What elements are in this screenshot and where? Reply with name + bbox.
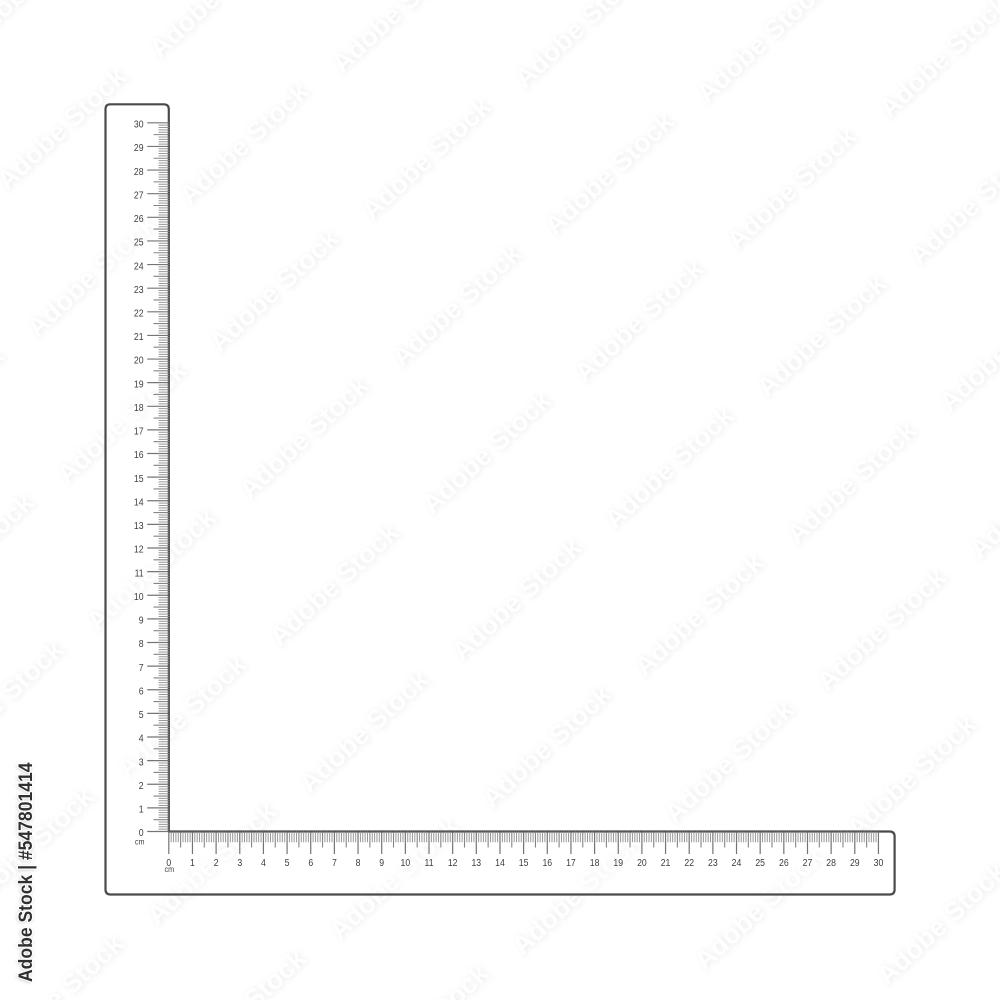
svg-text:1: 1 <box>139 804 144 816</box>
svg-text:20: 20 <box>134 355 144 367</box>
svg-text:4: 4 <box>261 857 266 869</box>
svg-text:25: 25 <box>134 237 144 249</box>
svg-text:17: 17 <box>566 857 576 869</box>
svg-text:16: 16 <box>542 857 552 869</box>
svg-text:25: 25 <box>755 857 765 869</box>
svg-text:14: 14 <box>134 497 144 509</box>
svg-text:12: 12 <box>134 544 144 556</box>
svg-text:11: 11 <box>135 568 144 580</box>
svg-text:7: 7 <box>139 662 144 674</box>
svg-text:29: 29 <box>850 857 860 869</box>
svg-text:cm: cm <box>164 865 174 875</box>
svg-text:30: 30 <box>134 119 144 131</box>
svg-text:1: 1 <box>190 857 195 869</box>
svg-text:28: 28 <box>134 166 144 178</box>
svg-text:4: 4 <box>139 733 144 745</box>
svg-text:19: 19 <box>613 857 623 869</box>
svg-text:12: 12 <box>448 857 458 869</box>
svg-text:23: 23 <box>134 284 144 296</box>
svg-text:9: 9 <box>379 857 384 869</box>
svg-text:19: 19 <box>134 379 144 391</box>
svg-text:22: 22 <box>684 857 694 869</box>
svg-text:8: 8 <box>356 857 361 869</box>
svg-text:3: 3 <box>139 757 144 769</box>
svg-text:6: 6 <box>308 857 313 869</box>
svg-text:16: 16 <box>134 450 144 462</box>
svg-text:14: 14 <box>495 857 505 869</box>
svg-text:2: 2 <box>139 780 144 792</box>
svg-text:5: 5 <box>139 709 144 721</box>
svg-text:26: 26 <box>134 213 144 225</box>
svg-text:2: 2 <box>214 857 219 869</box>
svg-text:23: 23 <box>708 857 718 869</box>
svg-text:11: 11 <box>424 857 433 869</box>
svg-text:8: 8 <box>139 639 144 651</box>
svg-text:5: 5 <box>285 857 290 869</box>
svg-text:15: 15 <box>519 857 529 869</box>
svg-text:10: 10 <box>401 857 411 869</box>
svg-text:17: 17 <box>134 426 144 438</box>
svg-text:18: 18 <box>134 402 144 414</box>
svg-text:10: 10 <box>134 591 144 603</box>
svg-text:24: 24 <box>732 857 742 869</box>
svg-text:21: 21 <box>661 857 671 869</box>
svg-text:24: 24 <box>134 261 144 273</box>
svg-text:cm: cm <box>135 837 145 847</box>
svg-text:22: 22 <box>134 308 144 320</box>
svg-text:15: 15 <box>134 473 144 485</box>
svg-text:26: 26 <box>779 857 789 869</box>
svg-text:20: 20 <box>637 857 647 869</box>
svg-text:18: 18 <box>590 857 600 869</box>
svg-text:28: 28 <box>826 857 836 869</box>
svg-text:21: 21 <box>134 331 144 343</box>
svg-text:13: 13 <box>134 520 144 532</box>
svg-text:27: 27 <box>134 190 144 202</box>
svg-text:29: 29 <box>134 142 144 154</box>
svg-text:27: 27 <box>803 857 813 869</box>
svg-text:3: 3 <box>237 857 242 869</box>
svg-text:7: 7 <box>332 857 337 869</box>
svg-text:30: 30 <box>874 857 884 869</box>
svg-text:6: 6 <box>139 686 144 698</box>
svg-text:Adobe Stock | #547801414: Adobe Stock | #547801414 <box>14 762 36 982</box>
svg-text:9: 9 <box>139 615 144 627</box>
svg-text:13: 13 <box>471 857 481 869</box>
